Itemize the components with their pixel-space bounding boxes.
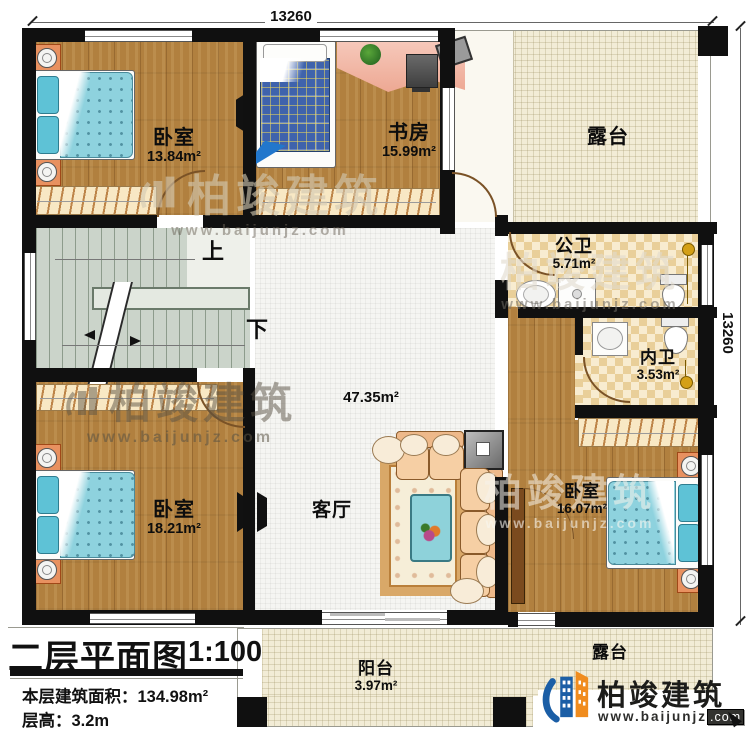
floor-height-value: 3.2m (72, 712, 110, 730)
floor-area-line: 本层建筑面积：134.98m² (22, 683, 208, 707)
title-underline-bar (10, 669, 243, 676)
dimension-value: 13260 (719, 307, 736, 359)
wall (508, 612, 518, 627)
lamp-icon (37, 162, 57, 182)
dimension-line-top (30, 22, 714, 23)
room-label-study: 书房 15.99m² (382, 122, 436, 161)
nightstand (33, 444, 61, 472)
stair-direction-text: 上 (202, 240, 224, 265)
room-label-balcony: 阳台 3.97m² (355, 659, 398, 693)
plan-scale: 1:100 (188, 636, 262, 669)
room-name: 内卫 (637, 348, 680, 367)
pillow (37, 76, 59, 114)
wall (22, 215, 157, 228)
stair-up-line (55, 259, 195, 260)
hallway-floor (508, 307, 575, 420)
computer-monitor-icon (406, 54, 438, 88)
wall (575, 405, 717, 418)
lamp-icon (37, 448, 57, 468)
wall-tv (257, 492, 267, 532)
wall (22, 368, 197, 382)
room-area: 13.84m² (147, 149, 201, 165)
balcony-outline-bottom (237, 726, 533, 727)
room-area: 15.99m² (382, 144, 436, 160)
column (698, 26, 728, 56)
room-name: 卧室 (147, 127, 201, 149)
wall (255, 610, 322, 625)
room-label-public-bathroom: 公卫 5.71m² (553, 236, 596, 271)
pillow (678, 484, 700, 522)
nightstand (33, 158, 61, 186)
sliding-door-panel (385, 618, 440, 621)
sofa-arm-pillow (450, 578, 484, 604)
window (24, 253, 36, 340)
room-name: 卧室 (557, 482, 607, 501)
room-area: 18.21m² (147, 521, 201, 537)
stair-down-label: 下 (246, 318, 268, 343)
window (442, 88, 455, 170)
website-text: www.baijunjz (598, 709, 707, 724)
wardrobe (578, 418, 702, 447)
bed-sheet-fold (648, 481, 674, 563)
wall (495, 280, 508, 318)
room-area: 5.71m² (553, 256, 596, 271)
bed-sheet-fold (260, 58, 328, 82)
pillow (37, 476, 59, 514)
window (701, 245, 713, 305)
room-label-bedroom-bottom-left: 卧室 18.21m² (147, 499, 201, 538)
wall (555, 612, 703, 627)
wardrobe (33, 186, 157, 215)
sink-basin (597, 327, 623, 350)
terrace-door (518, 613, 555, 626)
window (320, 30, 438, 42)
lamp-cord (685, 360, 686, 376)
terrace-top-outline-right (710, 30, 711, 222)
wall (243, 40, 256, 228)
shower-drain-icon (572, 289, 582, 299)
bed-sheet-fold (60, 72, 90, 156)
pillow (37, 116, 59, 154)
room-label-living-room: 客厅 (312, 500, 352, 521)
sliding-door-panel (330, 613, 385, 616)
wall (203, 215, 452, 228)
room-label-terrace-top: 露台 (587, 126, 629, 148)
room-name: 卧室 (147, 499, 201, 521)
floor-area-label: 本层建筑面积： (22, 688, 138, 706)
window (701, 455, 713, 565)
stair-arrow-right (130, 336, 141, 346)
coffee-table (410, 494, 452, 562)
wardrobe (36, 384, 218, 411)
lamp-icon (37, 560, 57, 580)
ceiling-lamp-icon (680, 376, 693, 389)
plant-icon (360, 44, 381, 65)
wall (575, 318, 583, 355)
company-logo-icon (540, 664, 592, 726)
room-name: 客厅 (312, 500, 352, 521)
dimension-tick (27, 16, 38, 27)
nightstand (33, 556, 61, 584)
title-rule-top (8, 627, 244, 628)
column (493, 697, 526, 727)
room-label-terrace-bottom: 露台 (592, 643, 628, 662)
dimension-value: 13260 (265, 8, 317, 25)
room-label-private-bathroom: 内卫 3.53m² (637, 348, 680, 382)
balcony-outline-top (237, 628, 713, 629)
dimension-label-top: 13260 (256, 8, 326, 26)
window (90, 613, 195, 624)
wardrobe (258, 188, 440, 216)
floor-height-line: 层高：3.2m (22, 707, 109, 731)
sofa-pillow (432, 434, 460, 456)
wall (518, 307, 717, 318)
room-name: 露台 (587, 126, 629, 148)
floor-area-value: 134.98m² (138, 688, 209, 706)
room-label-bedroom-top-left: 卧室 13.84m² (147, 127, 201, 166)
wall (495, 228, 508, 236)
nightstand (33, 44, 61, 72)
sofa-pillow (400, 434, 428, 456)
stair-up-label: 上 (202, 240, 224, 265)
room-name: 公卫 (553, 236, 596, 256)
room-area: 3.97m² (355, 678, 398, 693)
pillow (678, 524, 700, 562)
room-label-bedroom-bottom-right: 卧室 16.07m² (557, 482, 607, 516)
floor-height-label: 层高： (22, 712, 72, 730)
lamp-cord (687, 254, 688, 304)
lamp-icon (37, 48, 57, 68)
stair-down-line (62, 345, 245, 346)
room-area: 16.07m² (557, 501, 607, 516)
column (237, 697, 267, 727)
wall (495, 477, 508, 612)
room-area: 47.35m² (343, 390, 399, 407)
floor-plan-canvas: 卧室 13.84m² 书房 15.99m² 露台 公卫 5.71m² 内卫 3.… (0, 0, 750, 737)
room-name: 阳台 (355, 659, 398, 678)
terrace-top-outline-top (455, 30, 711, 31)
ceiling-lamp-icon (682, 243, 695, 256)
sink-basin (523, 285, 549, 304)
pillow (37, 516, 59, 554)
room-name: 书房 (382, 122, 436, 144)
wall (243, 368, 255, 382)
dimension-line-right (740, 28, 741, 625)
dimension-label-right: 13260 (720, 304, 736, 362)
window (85, 30, 192, 42)
table-lamp-icon (476, 442, 490, 456)
stair-direction-text: 下 (246, 318, 268, 343)
room-name: 露台 (592, 643, 628, 662)
stair-arrow-left (84, 330, 95, 340)
room-area: 3.53m² (637, 367, 680, 382)
bed-sheet-fold (60, 472, 90, 556)
company-website: www.baijunjz.com (598, 708, 744, 726)
dimension-tick (707, 16, 718, 27)
private-bathroom-door-floor (575, 355, 583, 405)
living-room-area-label: 47.35m² (343, 390, 399, 407)
monitor-stand (412, 88, 430, 92)
wall (447, 610, 508, 625)
